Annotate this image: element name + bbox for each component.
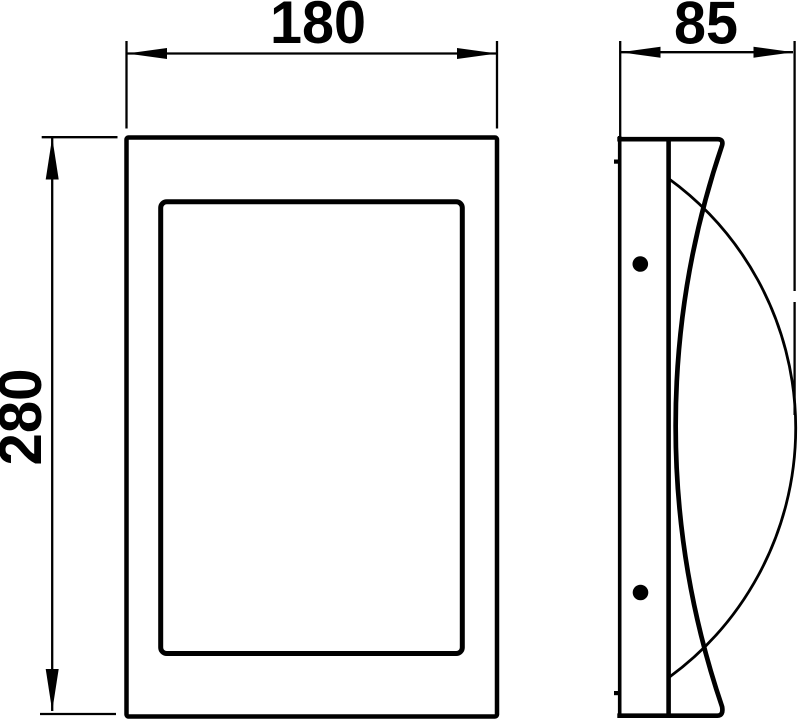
svg-text:85: 85 xyxy=(674,0,738,57)
svg-text:180: 180 xyxy=(270,0,366,56)
svg-text:280: 280 xyxy=(0,369,54,466)
